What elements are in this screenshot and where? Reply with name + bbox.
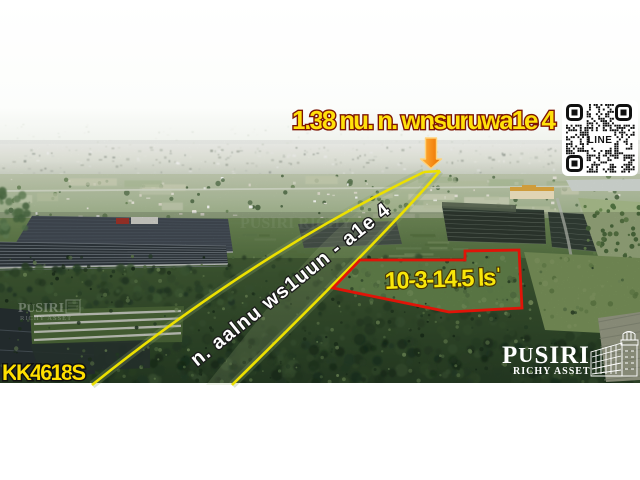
svg-text:PUSIRI: PUSIRI	[502, 342, 590, 369]
svg-text:10-3-14.5 lsˈ: 10-3-14.5 lsˈ	[384, 264, 503, 295]
svg-text:PUSIRI: PUSIRI	[18, 301, 64, 316]
svg-text:KK4618S: KK4618S	[2, 360, 86, 385]
svg-text:RICHY ASSET: RICHY ASSET	[513, 366, 591, 377]
svg-text:1.38 nu. n. wnsuruwa1e 4: 1.38 nu. n. wnsuruwa1e 4	[292, 105, 557, 135]
svg-text:RICHY ASSET: RICHY ASSET	[20, 315, 72, 322]
svg-text:LINE: LINE	[588, 135, 613, 146]
